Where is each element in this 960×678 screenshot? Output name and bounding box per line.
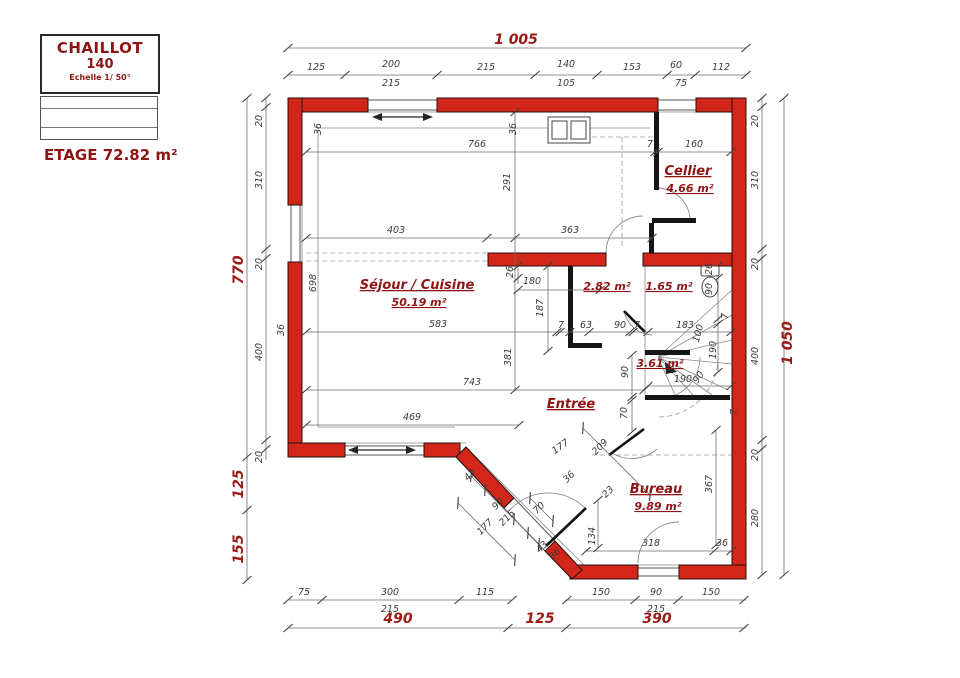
inner-wall-lines (302, 112, 732, 565)
dim-label: 743 (463, 377, 481, 388)
dim-label: 36 (561, 469, 577, 485)
dim-label: 60 (670, 60, 682, 71)
dim-label: 200 (382, 59, 400, 70)
dim-label: 36 (508, 123, 519, 135)
wall-left-lower (288, 262, 302, 457)
dim-label: 150 (702, 587, 720, 598)
dim-label: 400 (254, 343, 265, 361)
dim-label: 177 (550, 437, 571, 456)
dim-label: 70 (531, 500, 547, 516)
dim-label: 134 (587, 527, 598, 545)
dim-label: 1 050 (780, 321, 796, 365)
wall-diagonal-b (545, 541, 582, 579)
dim-label: 90 (704, 283, 715, 295)
room-name-label: Entrée (547, 397, 596, 412)
dim-label: 20 (254, 115, 265, 127)
dim-label: 23 (600, 484, 616, 500)
dim-label: 90 (691, 369, 707, 385)
dim-label: 190 (708, 341, 719, 359)
dim-label: 381 (503, 348, 514, 366)
dim-label: 698 (308, 274, 319, 292)
dim-label: 36 (313, 123, 324, 135)
wall-center-band-left (488, 253, 606, 266)
sink-bowl-left (552, 121, 567, 139)
wall-bottom-right-b (679, 565, 746, 579)
dim-label: 125 (307, 62, 325, 73)
dim-label: 153 (623, 62, 641, 73)
dim-label: 70 (619, 407, 630, 419)
dim-label: 36 (716, 538, 728, 549)
dim-label: 155 (231, 534, 247, 563)
dim-label: 310 (254, 171, 265, 189)
dim-label: 215 (382, 78, 400, 89)
dim-label: 403 (387, 225, 405, 236)
arrow-head (348, 446, 358, 454)
dim-label: 20 (254, 258, 265, 270)
wall-bottom-left-a (288, 443, 345, 457)
dim-label: 90 (620, 366, 631, 378)
room-area-label: 2.82 m² (583, 280, 630, 293)
dim-label: 105 (557, 78, 575, 89)
dim-label: 280 (750, 509, 761, 527)
floor-plan-drawing: 1 00512520021521514010515360751127701251… (0, 0, 960, 678)
dim-label: 209 (590, 437, 611, 458)
dim-label: 1 005 (494, 32, 538, 48)
dim-label: 177 (475, 517, 496, 538)
wall-top-mid (437, 98, 658, 112)
dim-label: 125 (525, 611, 554, 627)
room-name-label: Bureau (630, 482, 682, 497)
dim-label: 90 (614, 320, 626, 331)
room-area-label: 1.65 m² (645, 280, 692, 293)
dim-label: 112 (712, 62, 730, 73)
wall-bottom-left-b (424, 443, 460, 457)
dim-label: 766 (468, 139, 486, 150)
dim-label: 583 (429, 319, 447, 330)
dim-label: 115 (476, 587, 494, 598)
cellier-wall-h (652, 218, 696, 223)
room-name-label: Cellier (665, 164, 714, 179)
dim-label: 770 (231, 255, 247, 284)
room-area-label: 4.66 m² (665, 182, 713, 195)
dim-label: 26 (704, 263, 715, 275)
wall-center-band-right (643, 253, 732, 266)
dim-label: 140 (557, 59, 575, 70)
stair-wall-top (645, 350, 690, 355)
dim-label: 291 (502, 173, 513, 191)
dim-label: 390 (642, 611, 671, 627)
dim-label: 20 (750, 449, 761, 461)
dim-labels: 1 00512520021521514010515360751127701251… (231, 32, 796, 627)
room-area-label: 3.61 m² (636, 357, 683, 370)
sink-bowl-right (571, 121, 586, 139)
dim-label: 26 (505, 266, 516, 278)
dim-label: 75 (298, 587, 310, 598)
dim-label: 310 (750, 171, 761, 189)
dim-label: 20 (254, 451, 265, 463)
stair-wall-bottom (645, 395, 730, 400)
dim-label: 318 (642, 538, 660, 549)
dim-label: 36 (276, 324, 287, 336)
wall-right (732, 98, 746, 579)
dim-label: 7 (720, 313, 731, 319)
wall-left-upper (288, 98, 302, 205)
dim-label: 20 (750, 115, 761, 127)
dim-label: 7 (647, 139, 653, 150)
room-area-label: 50.19 m² (392, 296, 447, 309)
dim-label: 215 (477, 62, 495, 73)
room-labels: Séjour / Cuisine50.19 m²Cellier4.66 m²En… (360, 164, 714, 513)
dim-label: 490 (382, 611, 412, 627)
dim-label: 7 (558, 320, 564, 331)
dim-label: 180 (523, 276, 541, 287)
dim-label: 187 (535, 299, 546, 317)
arrow-head (406, 446, 416, 454)
dim-label: 367 (704, 475, 715, 493)
dim-label: 20 (750, 258, 761, 270)
wc-wall-v (568, 266, 573, 348)
room-name-label: Séjour / Cuisine (360, 278, 475, 293)
dim-label: 400 (750, 347, 761, 365)
dim-label: 63 (580, 320, 592, 331)
room-area-label: 9.89 m² (634, 500, 681, 513)
dim-label: 7 (729, 409, 740, 415)
dim-label: 469 (403, 412, 421, 423)
wc-wall-h (568, 343, 602, 348)
dim-label: 7 (634, 320, 640, 331)
arrow-head (423, 113, 433, 121)
dim-label: 75 (675, 78, 687, 89)
dim-label: 363 (561, 225, 579, 236)
dim-label: 215 (497, 508, 518, 529)
dim-label: 190 (674, 374, 692, 385)
dim-label: 300 (381, 587, 399, 598)
dim-label: 160 (685, 139, 703, 150)
dim-label: 125 (231, 469, 247, 498)
dim-label: 150 (592, 587, 610, 598)
floor-plan-page: CHAILLOT 140 Echelle 1/ 50° ETAGE 72.82 … (0, 0, 960, 678)
dim-label: 183 (676, 320, 694, 331)
arrow-head (372, 113, 382, 121)
dim-label: 90 (650, 587, 662, 598)
